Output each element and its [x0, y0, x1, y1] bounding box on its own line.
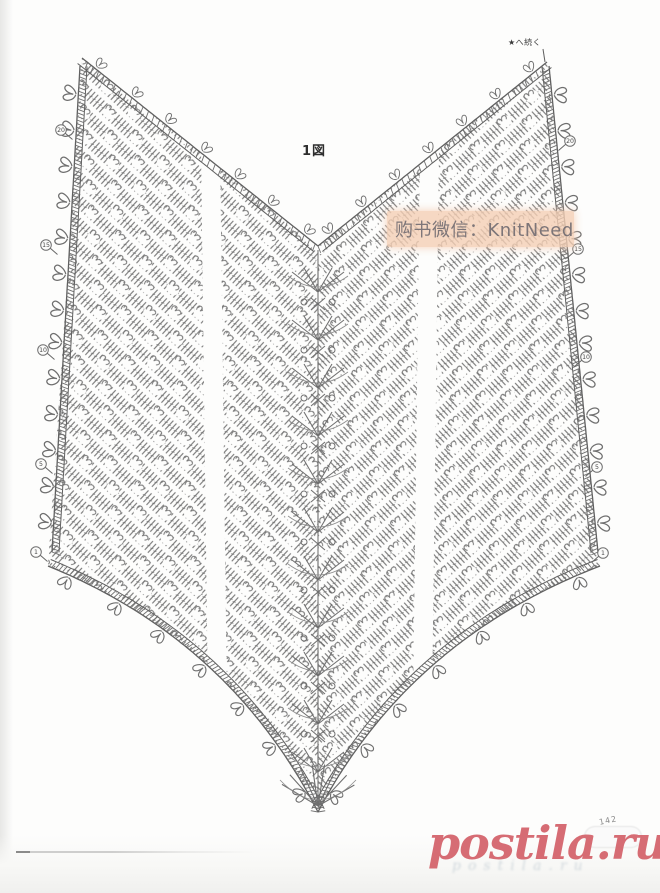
scanned-pattern-page: 2015105120151051 1図 ★へ続く 购书微信：KnitNeed 1… — [0, 0, 660, 893]
continuation-note: ★へ続く — [508, 37, 541, 48]
row-marker-label: 10 — [582, 354, 590, 361]
row-marker: 20 — [56, 125, 73, 140]
row-marker: 1 — [31, 547, 48, 562]
row-marker-label: 1 — [34, 549, 38, 556]
row-marker-label: 5 — [595, 464, 599, 471]
row-marker-label: 20 — [566, 138, 574, 145]
row-marker-label: 15 — [574, 246, 582, 253]
row-marker-label: 20 — [57, 127, 65, 134]
figure-label: 1図 — [302, 140, 326, 159]
scan-artifact-line — [16, 851, 256, 853]
fabric — [0, 0, 660, 893]
row-marker: 5 — [36, 459, 53, 474]
row-marker: 20 — [559, 136, 576, 151]
row-marker-label: 15 — [42, 242, 50, 249]
row-marker-label: 5 — [39, 461, 43, 468]
row-marker: 10 — [38, 345, 55, 360]
crochet-chart-figure: 2015105120151051 — [0, 0, 660, 893]
seller-watermark: 购书微信：KnitNeed — [387, 211, 574, 247]
row-marker-label: 10 — [39, 347, 47, 354]
site-watermark: postila.ru — [428, 820, 660, 866]
row-marker-label: 1 — [601, 550, 605, 557]
seller-watermark-text: 购书微信：KnitNeed — [395, 216, 574, 242]
